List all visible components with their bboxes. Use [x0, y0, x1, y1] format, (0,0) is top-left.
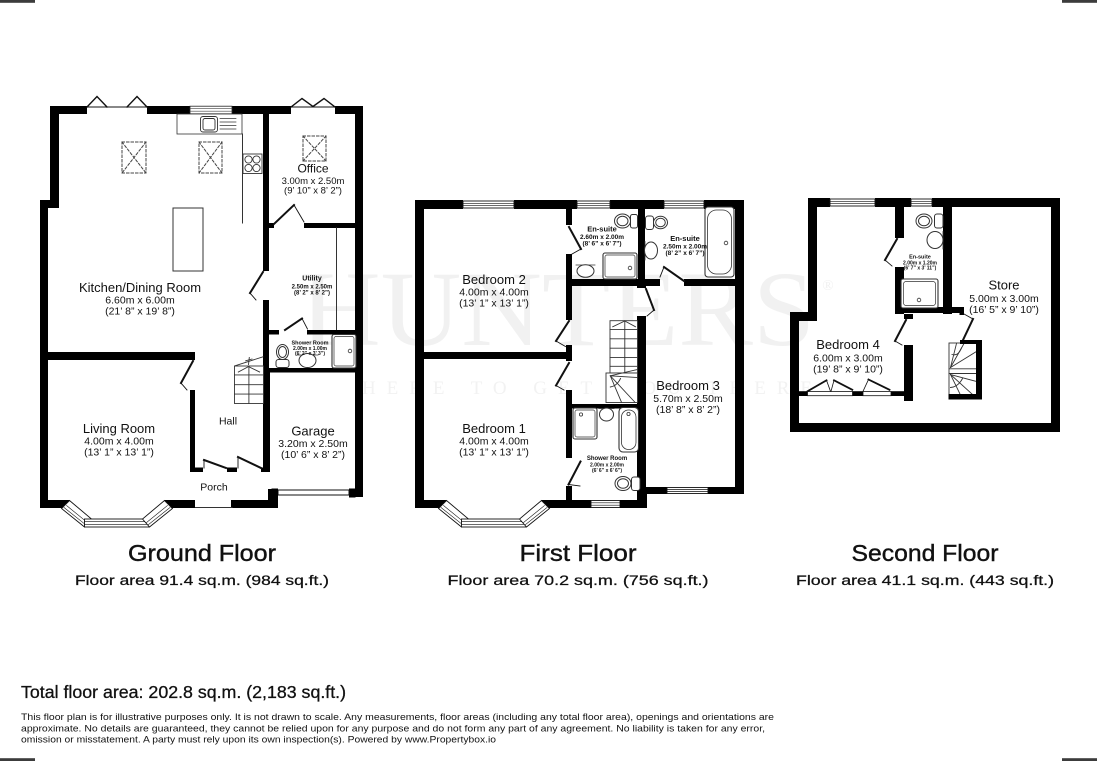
svg-text:Office: Office [297, 162, 328, 176]
svg-text:(16’ 5” x 9’ 10”): (16’ 5” x 9’ 10”) [969, 304, 1039, 316]
svg-text:Bedroom 4: Bedroom 4 [816, 337, 880, 352]
svg-text:(13’ 1” x 13’ 1”): (13’ 1” x 13’ 1”) [84, 447, 154, 459]
svg-text:(9’ 10” x 8’ 2”): (9’ 10” x 8’ 2”) [284, 186, 342, 197]
svg-text:(6’ 7” x 3’ 11”): (6’ 7” x 3’ 11”) [904, 266, 937, 272]
svg-text:Hall: Hall [219, 416, 237, 428]
svg-text:Kitchen/Dining Room: Kitchen/Dining Room [79, 280, 201, 295]
svg-text:Second Floor: Second Floor [852, 540, 999, 566]
svg-text:Bedroom 2: Bedroom 2 [462, 272, 526, 287]
svg-text:(19’ 8” x 9’ 10”): (19’ 8” x 9’ 10”) [813, 364, 883, 376]
svg-text:Floor area 70.2 sq.m. (756 sq.: Floor area 70.2 sq.m. (756 sq.ft.) [448, 573, 709, 588]
svg-text:Shower Room: Shower Room [587, 456, 627, 462]
svg-text:Total floor area: 202.8 sq.m.: Total floor area: 202.8 sq.m. (2,183 sq.… [21, 682, 346, 702]
svg-text:Garage: Garage [291, 424, 334, 439]
svg-text:(6’ 6” x 6’ 6”): (6’ 6” x 6’ 6”) [592, 468, 622, 474]
svg-text:(10’ 6” x 8’ 2”): (10’ 6” x 8’ 2”) [281, 449, 345, 461]
svg-text:En-suite: En-suite [587, 225, 617, 234]
svg-text:This floor plan is for illustr: This floor plan is for illustrative purp… [21, 712, 774, 723]
svg-text:(21’ 8” x 19’ 8”): (21’ 8” x 19’ 8”) [105, 306, 175, 318]
svg-text:Floor area 91.4 sq.m. (984 sq.: Floor area 91.4 sq.m. (984 sq.ft.) [75, 573, 329, 588]
svg-text:(8’ 2” x 8’ 2”): (8’ 2” x 8’ 2”) [294, 291, 330, 297]
svg-text:Store: Store [988, 278, 1019, 293]
svg-text:Bedroom 3: Bedroom 3 [656, 378, 720, 393]
svg-text:Ground Floor: Ground Floor [128, 540, 276, 566]
svg-text:Bedroom 1: Bedroom 1 [462, 421, 526, 436]
svg-text:omission or misstatement. A pa: omission or misstatement. A party must r… [21, 735, 496, 746]
svg-text:(13’ 1” x 13’ 1”): (13’ 1” x 13’ 1”) [459, 298, 529, 310]
svg-text:approximate. No details are gu: approximate. No details are guaranteed, … [21, 723, 765, 734]
svg-text:(18’ 8” x 8’ 2”): (18’ 8” x 8’ 2”) [656, 404, 720, 416]
svg-text:Porch: Porch [200, 482, 228, 494]
svg-text:Living Room: Living Room [83, 421, 155, 436]
svg-text:(6’ 2” x 3’ 3”): (6’ 2” x 3’ 3”) [295, 351, 325, 357]
svg-text:First Floor: First Floor [520, 540, 637, 566]
svg-text:(8’ 2” x 6’ 7”): (8’ 2” x 6’ 7”) [665, 250, 704, 257]
svg-text:HERE TO GET YOU THERE: HERE TO GET YOU THERE [362, 378, 812, 399]
svg-text:En-suite: En-suite [670, 234, 700, 243]
svg-text:®: ® [822, 278, 833, 294]
svg-text:Floor area 41.1 sq.m. (443 sq.: Floor area 41.1 sq.m. (443 sq.ft.) [796, 573, 1054, 588]
svg-text:(8’ 6” x 6’ 7”): (8’ 6” x 6’ 7”) [582, 241, 621, 248]
svg-text:Utility: Utility [302, 276, 322, 283]
svg-text:(13’ 1” x 13’ 1”): (13’ 1” x 13’ 1”) [459, 447, 529, 459]
